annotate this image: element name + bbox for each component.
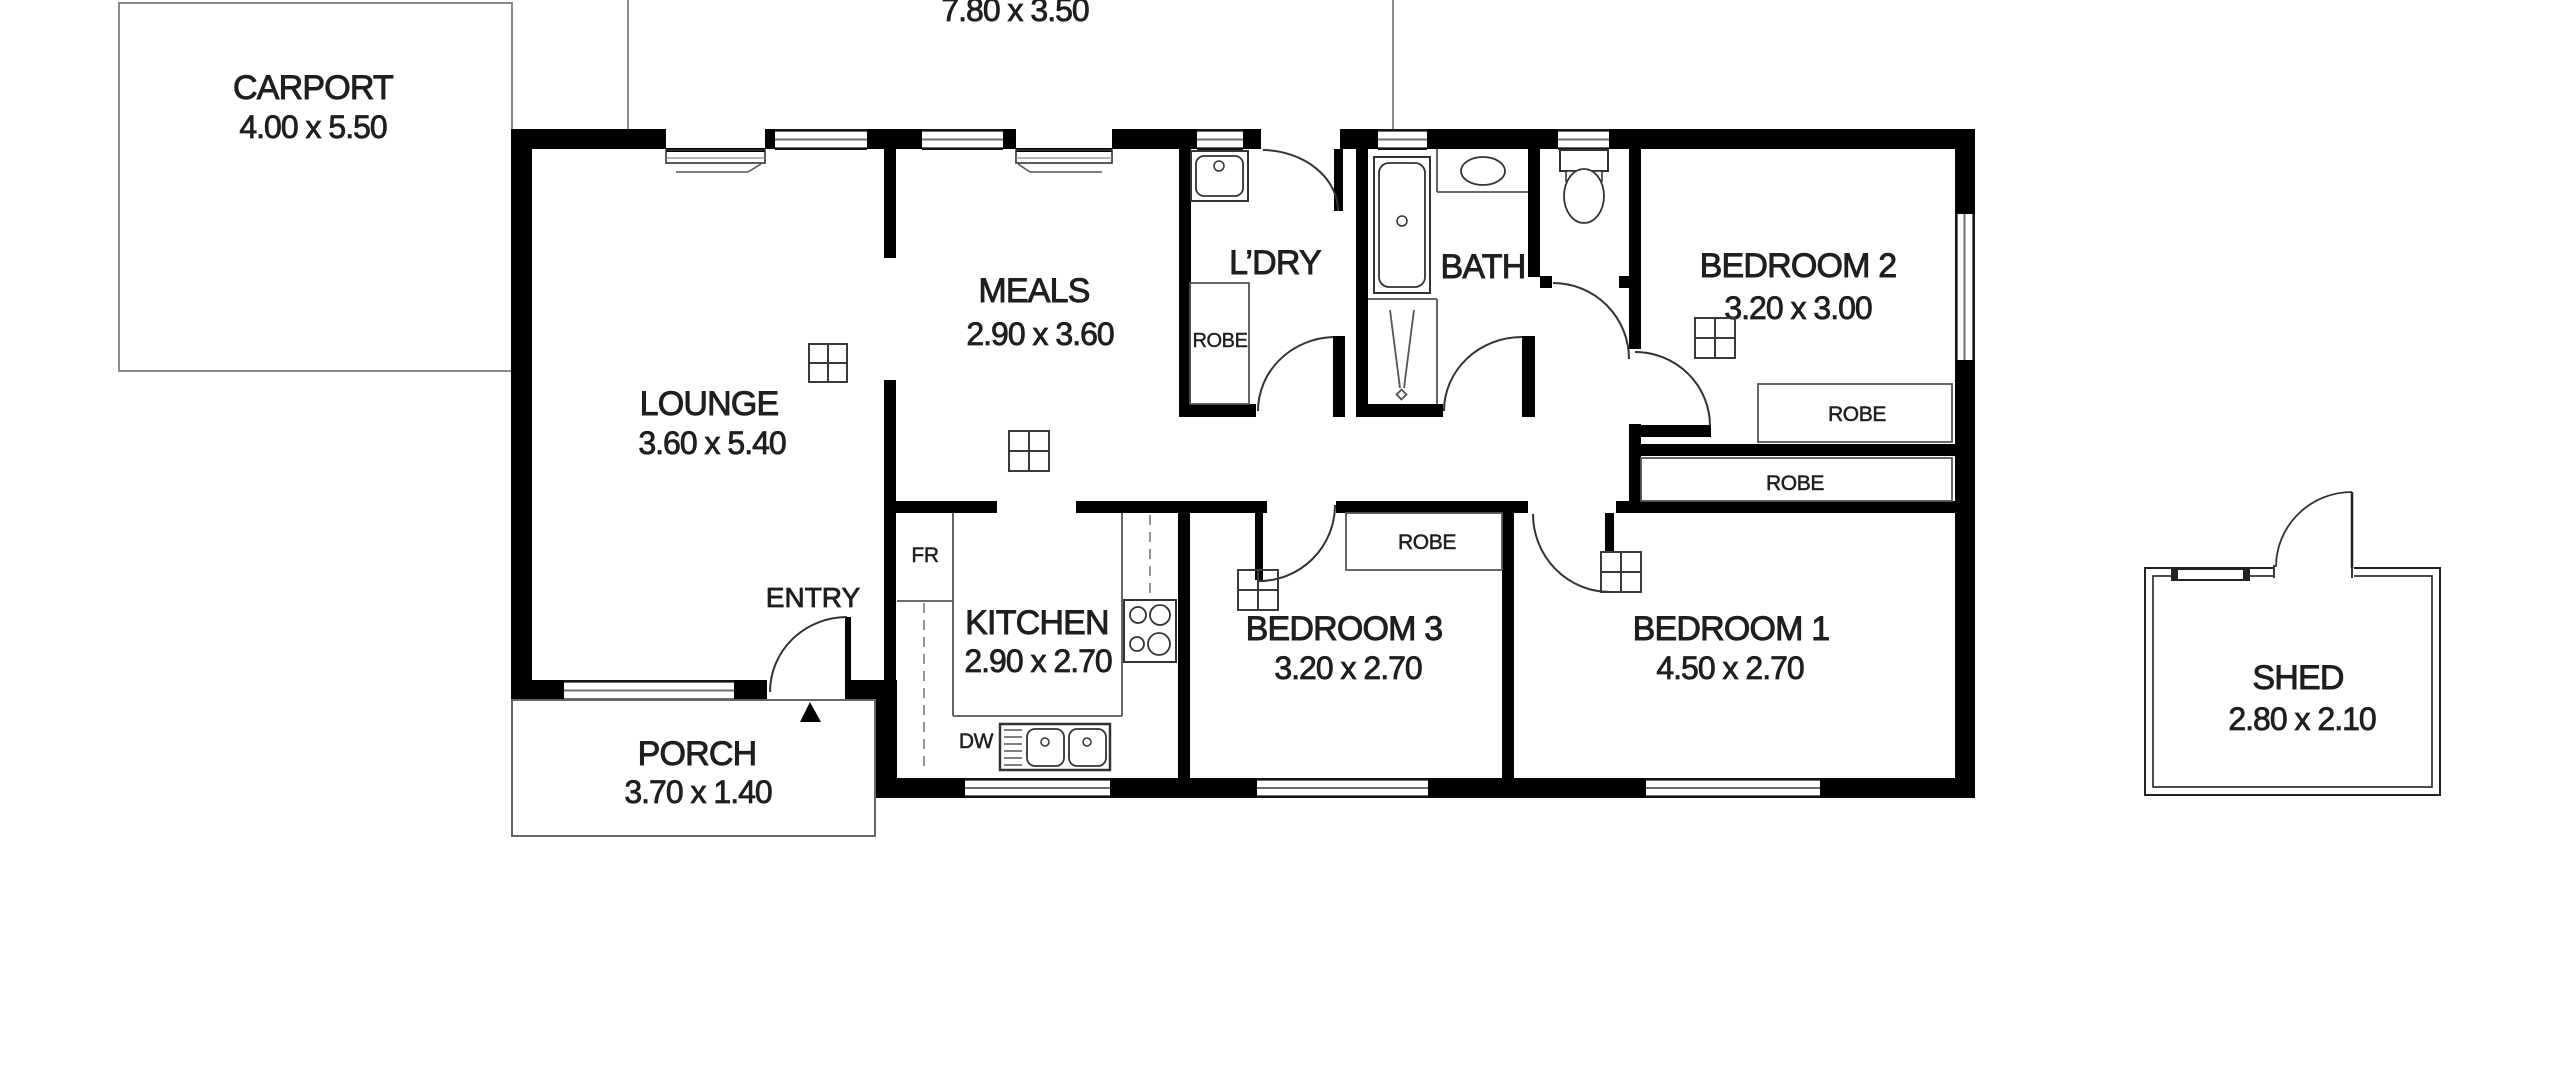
svg-text:KITCHEN: KITCHEN [965, 604, 1109, 642]
svg-text:3.60 x 5.40: 3.60 x 5.40 [638, 425, 786, 461]
svg-text:LOUNGE: LOUNGE [640, 385, 779, 423]
svg-text:2.80 x 2.10: 2.80 x 2.10 [2228, 701, 2376, 737]
svg-text:ENTRY: ENTRY [766, 582, 861, 613]
svg-text:DW: DW [959, 730, 994, 753]
svg-text:MEALS: MEALS [978, 272, 1089, 310]
svg-text:L’DRY: L’DRY [1229, 244, 1321, 282]
svg-text:ROBE: ROBE [1828, 403, 1886, 426]
svg-text:BEDROOM 1: BEDROOM 1 [1633, 610, 1830, 648]
svg-text:2.90 x 3.60: 2.90 x 3.60 [966, 316, 1114, 352]
svg-text:ROBE: ROBE [1398, 531, 1456, 554]
svg-text:BEDROOM 2: BEDROOM 2 [1700, 247, 1897, 285]
svg-text:SHED: SHED [2252, 659, 2343, 697]
svg-text:FR: FR [911, 544, 938, 567]
svg-text:3.70 x 1.40: 3.70 x 1.40 [624, 774, 772, 810]
svg-text:BEDROOM 3: BEDROOM 3 [1246, 610, 1443, 648]
svg-text:BATH: BATH [1441, 248, 1526, 286]
svg-text:ROBE: ROBE [1766, 472, 1824, 495]
svg-text:CARPORT: CARPORT [233, 69, 393, 107]
svg-text:3.20 x 3.00: 3.20 x 3.00 [1724, 290, 1872, 326]
svg-text:7.80 x 3.50: 7.80 x 3.50 [941, 0, 1089, 28]
svg-text:4.50 x 2.70: 4.50 x 2.70 [1656, 650, 1804, 686]
svg-text:3.20 x 2.70: 3.20 x 2.70 [1274, 650, 1422, 686]
svg-text:2.90 x 2.70: 2.90 x 2.70 [964, 643, 1112, 679]
svg-text:4.00 x 5.50: 4.00 x 5.50 [239, 109, 387, 145]
svg-text:ROBE: ROBE [1192, 330, 1247, 352]
svg-text:PORCH: PORCH [638, 735, 757, 773]
